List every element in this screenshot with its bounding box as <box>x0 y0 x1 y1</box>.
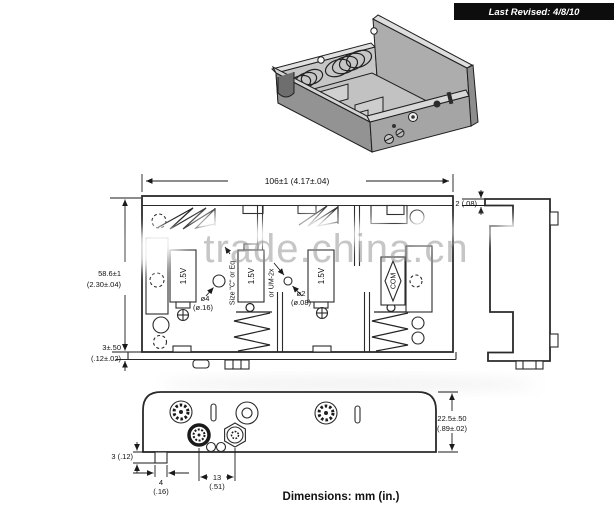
knurled-nut <box>189 425 209 445</box>
dim-base: 3±.50 (.12±.02) <box>91 342 125 371</box>
dim-tab-width: 4 (.16) <box>133 465 189 496</box>
hole2-in: (ø.08) <box>291 298 312 307</box>
drawing-sheet: Last Revised: 4/8/10 <box>0 0 616 515</box>
cell-voltage-label: 1.5V <box>179 267 188 284</box>
mount-clip <box>550 212 558 225</box>
dim-tab-height-text: 3 (.12) <box>111 452 133 461</box>
battery-label: 1.5V <box>170 250 196 308</box>
dim-bottom-height: 22.5±.50 (.89±.02) <box>437 392 467 452</box>
hole <box>207 443 216 452</box>
revision-banner-text: Last Revised: 4/8/10 <box>489 7 581 18</box>
dim-lip-text: 2 (.08) <box>455 199 477 208</box>
dim-pitch-mm: 13 <box>213 473 221 482</box>
side-view: 2 (.08) <box>455 190 558 369</box>
dim-base-mm: 3±.50 <box>102 343 121 352</box>
rivet-symbol <box>178 310 189 321</box>
com-label: COM <box>391 273 398 290</box>
hole4-in: (ø.16) <box>193 303 214 312</box>
hole2-mm: ø2 <box>297 289 306 298</box>
watermark-text: trade.china.cn <box>203 227 468 271</box>
hole4-mm: ø4 <box>201 294 210 303</box>
rim-hole <box>371 28 377 34</box>
dim-bottom-height-in: (.89±.02) <box>437 424 467 433</box>
rivet-symbol <box>317 308 328 319</box>
dim-pitch-in: (.51) <box>209 482 225 491</box>
revision-banner: Last Revised: 4/8/10 <box>454 3 614 20</box>
slot <box>211 404 216 421</box>
front-view: 1.5V 1.5V 1.5V Size "C" or Eq or UM-2x <box>112 196 456 369</box>
dim-height-in: (2.30±.04) <box>87 280 122 289</box>
dim-hole-pitch: 13 (.51) <box>199 448 235 491</box>
dim-width: 106±1 (4.17±.04) <box>142 174 453 192</box>
bottom-outline <box>143 392 436 452</box>
dim-height: 58.6±1 (2.30±.04) <box>87 198 141 351</box>
side-foot <box>516 361 543 369</box>
bottom-tab <box>155 452 167 463</box>
mount-clip <box>550 334 558 347</box>
isometric-view <box>272 15 478 152</box>
dim-width-text: 106±1 (4.17±.04) <box>265 176 330 186</box>
dim-base-in: (.12±.02) <box>91 354 121 363</box>
dim-height-mm: 58.6±1 <box>98 269 121 278</box>
hole <box>217 443 226 452</box>
solder-tab <box>193 360 209 368</box>
dim-bottom-height-mm: 22.5±.50 <box>437 414 466 423</box>
dim-tab-width-in: (.16) <box>153 487 169 496</box>
slot <box>355 406 360 423</box>
bottom-view: 22.5±.50 (.89±.02) 3 (.12) 4 (.16) 13 (.… <box>111 392 467 496</box>
connector-tab <box>225 360 249 369</box>
rim-hole <box>318 57 324 63</box>
size-note-2: or UM-2x <box>269 268 276 297</box>
dim-lip: 2 (.08) <box>455 190 485 215</box>
dimensions-note: Dimensions: mm (in.) <box>283 491 400 503</box>
hex-nut <box>225 423 246 447</box>
dim-tab-width-mm: 4 <box>159 478 163 487</box>
